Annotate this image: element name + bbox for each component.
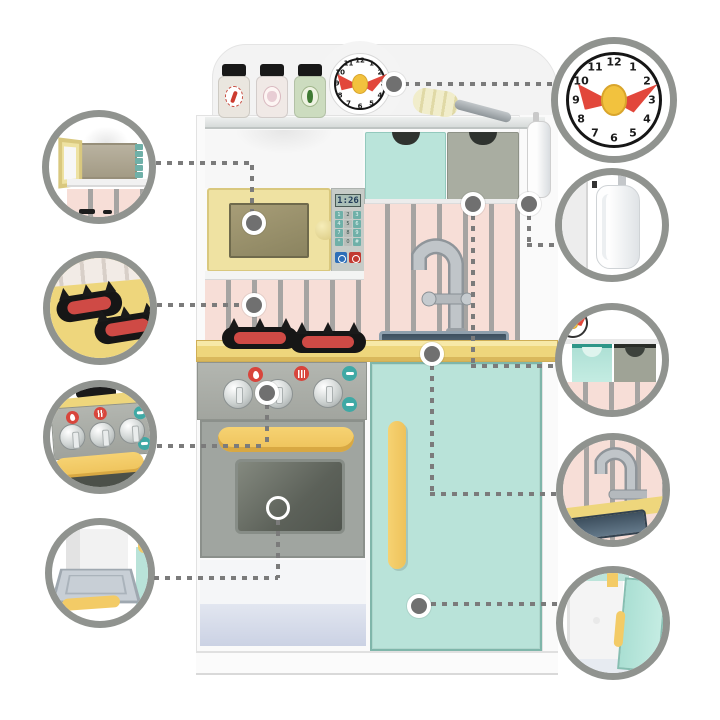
clock-numeral: 2 — [643, 76, 651, 87]
microwave-key: 9 — [353, 229, 361, 237]
lower-open-shelf — [200, 560, 366, 646]
clock-hands: 121234567891011 — [330, 54, 390, 114]
clock-numeral: 6 — [358, 104, 363, 111]
clock-center — [601, 84, 627, 115]
clock-numeral: 11 — [587, 62, 602, 73]
clock-numeral: 5 — [629, 127, 637, 138]
microwave-stop-button — [349, 252, 361, 263]
microwave-key: 8 — [344, 229, 352, 237]
microwave-key: 7 — [335, 229, 343, 237]
connector-oven-h — [154, 576, 278, 580]
connector-burner — [157, 303, 243, 307]
microwave: 1:26 123456789*0# — [207, 188, 365, 272]
faucet — [405, 228, 471, 340]
open-cubby — [205, 130, 363, 188]
marker-knob — [255, 381, 279, 405]
connector-microwave-v — [250, 165, 254, 213]
utensils-badge-icon — [294, 366, 309, 381]
drawer-mint-detail — [572, 344, 612, 382]
tray-yellow-edge — [62, 595, 121, 611]
connector-drawer-v — [471, 215, 475, 366]
connector-knob-h — [157, 444, 267, 448]
oven-knob-3 — [313, 378, 343, 408]
leaf-icon — [301, 86, 319, 107]
drawer-notch — [469, 132, 497, 145]
callout-clock: 121234567891011 — [551, 37, 677, 163]
microwave-keypad: 123456789*0# — [335, 211, 362, 246]
oven-control-panel — [197, 362, 367, 420]
connector-clock — [404, 82, 552, 86]
clock-numeral: 7 — [591, 127, 599, 138]
spice-jar-garlic — [256, 64, 288, 118]
callout-open-door — [556, 566, 670, 680]
clock-numeral: 7 — [346, 100, 351, 107]
spice-jar-herb — [294, 64, 326, 118]
burner-coil — [234, 332, 286, 344]
phone-handset — [527, 121, 551, 198]
callout-folddown-door — [45, 518, 155, 628]
water-badge-icon — [342, 397, 357, 412]
clock-numeral: 11 — [344, 61, 354, 68]
microwave-key: 3 — [353, 211, 361, 219]
mini-clock — [555, 305, 591, 341]
connector-knob-v — [265, 404, 269, 446]
callout-microwave-open — [42, 110, 156, 224]
clock-numeral: 5 — [369, 100, 374, 107]
microwave-key: 2 — [344, 211, 352, 219]
spatula-head — [411, 86, 461, 119]
drawer-notch — [392, 132, 420, 145]
microwave-window — [229, 203, 309, 258]
paneling — [562, 382, 662, 410]
connector-microwave-h — [156, 161, 252, 165]
base-plinth — [196, 651, 558, 675]
clock-numeral: 1 — [629, 62, 637, 73]
marker-oven-window — [266, 496, 290, 520]
product-photo: 121234567891011 1:26 123456789*0# — [0, 0, 720, 720]
spice-jar-chili — [218, 64, 250, 118]
callout-sink-faucet — [556, 433, 670, 547]
oven-knob-1 — [223, 379, 253, 409]
fridge-handle — [388, 421, 406, 569]
clock-center — [352, 74, 369, 94]
open-mint-door — [617, 577, 667, 672]
steam-badge-icon — [342, 366, 357, 381]
fridge-door — [370, 362, 542, 651]
connector-sink-h — [430, 492, 558, 496]
cabinet-top-edge — [563, 573, 629, 581]
microwave-interior — [79, 143, 137, 179]
burner-left — [222, 318, 298, 350]
clock-numeral: 1 — [369, 61, 374, 68]
fridge-handle-edge — [138, 531, 150, 553]
microwave-key: 5 — [344, 220, 352, 228]
connector-phone-h — [527, 243, 558, 247]
oven-door — [200, 420, 365, 558]
interior-dot — [593, 617, 600, 624]
side-panel — [562, 175, 588, 275]
oven-window — [235, 459, 345, 534]
spatula-handle — [454, 99, 513, 124]
clock-numeral: 3 — [648, 95, 656, 106]
marker-sink — [420, 342, 444, 366]
shelf-floor — [200, 604, 366, 646]
drawer-gray-detail — [614, 344, 656, 382]
microwave-key: 6 — [353, 220, 361, 228]
connector-oven-v — [276, 520, 280, 578]
clock-numeral: 12 — [606, 57, 621, 68]
phone-handset-detail — [596, 185, 640, 269]
marker-clock — [382, 72, 406, 96]
connector-sink-v — [430, 365, 434, 494]
mount-screw — [592, 181, 597, 188]
garlic-icon — [263, 86, 281, 107]
callout-burners — [43, 251, 157, 365]
microwave-key: # — [353, 238, 361, 246]
callout-phone — [555, 168, 669, 282]
microwave-key: 0 — [344, 238, 352, 246]
side-phone — [527, 112, 551, 198]
flame-badge-icon — [248, 367, 263, 382]
microwave-display: 1:26 — [335, 194, 361, 207]
connector-fridge — [431, 602, 558, 606]
mid-shelf — [205, 271, 365, 280]
callout-drawers — [555, 303, 669, 417]
marker-microwave — [242, 211, 266, 235]
right-lower-frame — [542, 362, 558, 651]
clock-numeral: 12 — [355, 58, 365, 65]
microwave-key: * — [335, 238, 343, 246]
chili-pepper-icon — [225, 86, 243, 107]
clock-hands: 121234567891011 — [558, 44, 670, 156]
clock-numeral: 2 — [377, 69, 382, 76]
clock-numeral: 6 — [610, 133, 618, 144]
callout-oven-knobs — [43, 380, 157, 494]
marker-fridge — [407, 594, 431, 618]
hinge-yellow — [607, 573, 618, 587]
drawer-gray — [447, 132, 519, 200]
microwave-key: 4 — [335, 220, 343, 228]
oven-handle — [218, 427, 354, 452]
clock-numeral: 8 — [338, 92, 343, 99]
burner-right — [290, 322, 366, 354]
clock-numeral: 4 — [377, 92, 382, 99]
microwave-control-panel: 1:26 123456789*0# — [331, 188, 365, 272]
microwave-key: 1 — [335, 211, 343, 219]
marker-phone — [517, 192, 541, 216]
clock-numeral: 10 — [335, 69, 345, 76]
clock-numeral: 9 — [335, 81, 340, 88]
drawer-mint — [365, 132, 446, 200]
burner-coil — [302, 336, 354, 348]
connector-drawer-h — [471, 364, 557, 368]
connector-phone-v — [527, 215, 531, 245]
microwave-start-button — [335, 252, 347, 263]
marker-burner — [242, 293, 266, 317]
clock-numeral: 8 — [577, 114, 585, 125]
clock-numeral: 9 — [572, 95, 580, 106]
clock-numeral: 4 — [643, 114, 651, 125]
marker-drawer — [461, 192, 485, 216]
clock-numeral: 10 — [573, 76, 588, 87]
